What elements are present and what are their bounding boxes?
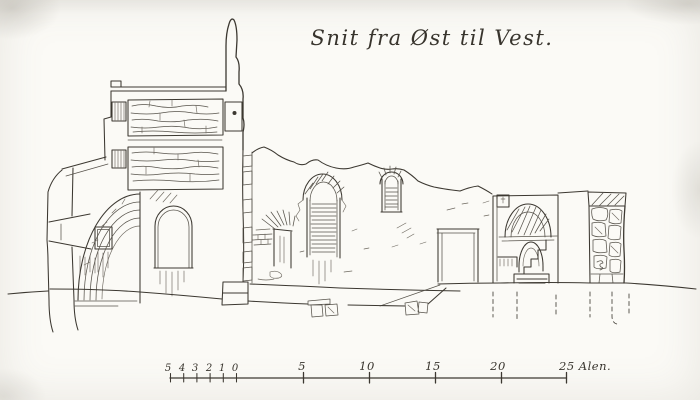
foundation-stones-right [405,301,428,315]
scale-minor-label-0: 0 [232,363,239,374]
chapel-arched-niche [493,195,558,283]
scale-minor-label-5: 5 [165,363,171,374]
scale-major-label-20: 20 [489,359,506,373]
scale-minor-label-4: 4 [178,363,185,374]
drawing-title: Snit fra Øst til Vest. [311,26,554,50]
ruin-section-drawing: Snit fra Øst til Vest. [0,0,700,400]
apse-section [8,157,140,332]
tower-upper-band [112,99,242,136]
scale-major-label-5: 5 [298,359,306,373]
nave-doorway [252,210,295,280]
tower-window [154,206,193,296]
tower-cut-wall-strip [243,152,252,283]
nave-wall-section [250,147,460,291]
scale-minor-label-2: 2 [205,363,212,374]
chapel-door [437,229,479,282]
scale-minor-label-3: 3 [192,363,198,374]
tower-lower-band [112,147,223,190]
nave-window-small [379,166,403,212]
nave-window-large [296,172,346,284]
tower-section [104,19,252,305]
scale-end-label-25-alen: 25 Alen. [558,359,611,373]
foundation-stones-left [308,299,338,317]
rubble-pier [588,192,626,283]
scale-bar: 5 4 3 2 1 0 5 10 15 20 25 Alen. [165,359,611,383]
scanned-drawing-page: Snit fra Øst til Vest. [0,0,700,400]
scale-major-label-10: 10 [359,359,375,373]
excavation-dashed-lines [493,292,629,324]
tower-gable-remnant [226,19,244,150]
scale-major-label-15: 15 [425,359,441,373]
apse-dome-arcs [78,194,140,300]
tower-foundation-block [222,282,248,305]
scale-minor-label-1: 1 [219,363,225,374]
